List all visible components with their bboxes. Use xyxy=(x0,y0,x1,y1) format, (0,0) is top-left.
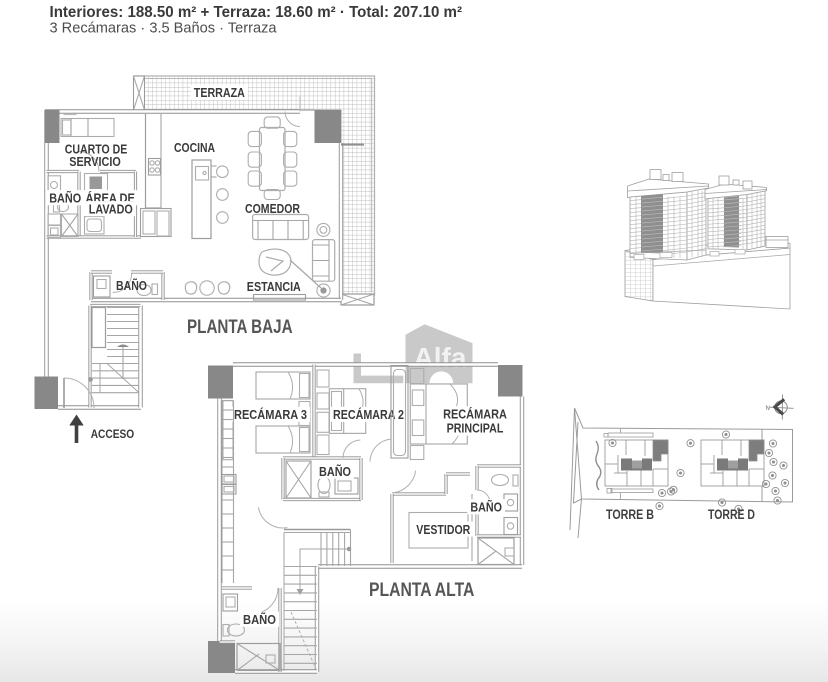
svg-text:TERRAZA: TERRAZA xyxy=(194,85,245,100)
svg-text:TORRE D: TORRE D xyxy=(708,507,755,522)
svg-text:3 Recámaras · 3.5 Baños · Terr: 3 Recámaras · 3.5 Baños · Terraza xyxy=(50,19,278,36)
svg-text:VESTIDOR: VESTIDOR xyxy=(416,522,470,537)
svg-text:BAÑO: BAÑO xyxy=(319,464,351,479)
svg-text:RECÁMARA: RECÁMARA xyxy=(443,407,507,422)
svg-text:COCINA: COCINA xyxy=(174,140,215,155)
svg-text:BAÑO: BAÑO xyxy=(49,190,81,205)
svg-text:Interiores: 188.50 m² + Terraz: Interiores: 188.50 m² + Terraza: 18.60 m… xyxy=(50,4,463,21)
svg-text:BAÑO: BAÑO xyxy=(116,278,147,293)
svg-text:PLANTA BAJA: PLANTA BAJA xyxy=(187,316,293,338)
svg-text:ESTANCIA: ESTANCIA xyxy=(247,279,302,294)
svg-text:BAÑO: BAÑO xyxy=(243,612,276,627)
svg-text:PLANTA ALTA: PLANTA ALTA xyxy=(369,579,474,601)
svg-text:N: N xyxy=(766,406,770,412)
svg-text:ACCESO: ACCESO xyxy=(91,427,135,441)
svg-text:LAVADO: LAVADO xyxy=(89,201,133,216)
svg-text:SERVICIO: SERVICIO xyxy=(69,154,121,169)
svg-text:BAÑO: BAÑO xyxy=(470,500,502,515)
svg-text:COMEDOR: COMEDOR xyxy=(245,201,300,216)
svg-text:PRINCIPAL: PRINCIPAL xyxy=(447,421,504,436)
svg-text:TORRE B: TORRE B xyxy=(606,507,654,522)
svg-text:RECÁMARA 3: RECÁMARA 3 xyxy=(234,407,307,422)
